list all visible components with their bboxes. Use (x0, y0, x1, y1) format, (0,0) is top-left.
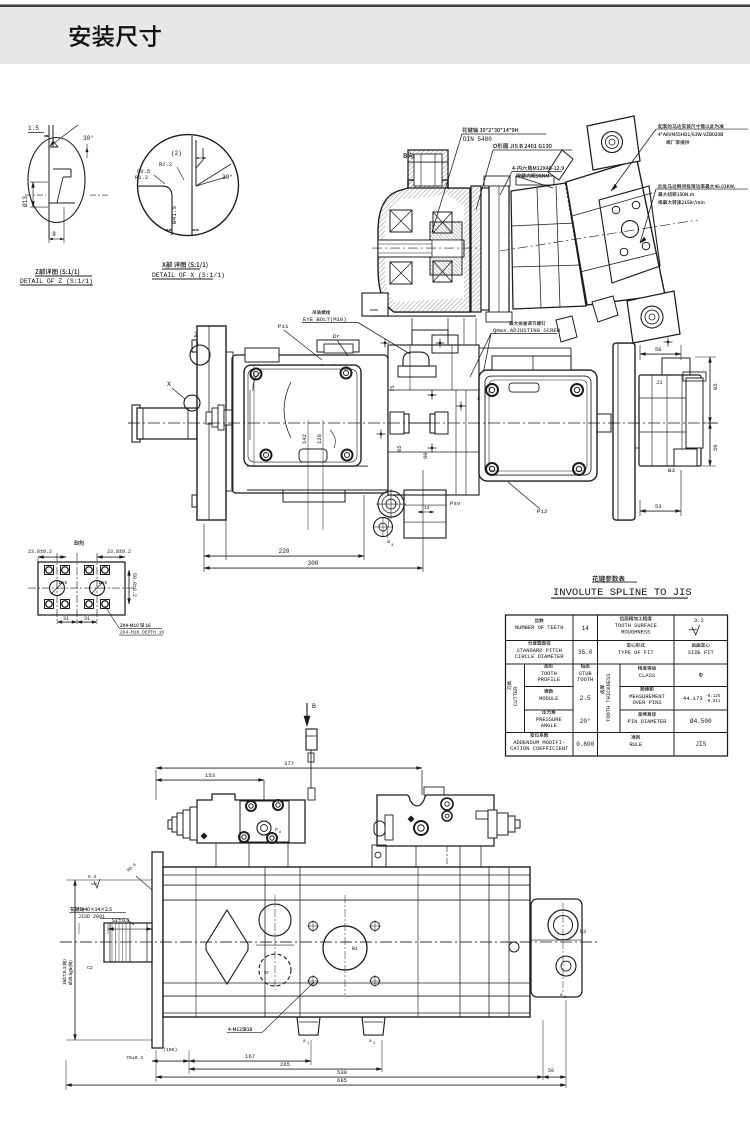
svg-text:EYE BOLT(M10): EYE BOLT(M10) (303, 316, 347, 323)
svg-text:Ø19: Ø19 (99, 579, 107, 586)
svg-text:ADDENDUM MODIFI-: ADDENDUM MODIFI- (513, 740, 565, 746)
svg-text:300: 300 (308, 560, 319, 567)
svg-text:31: 31 (84, 616, 90, 622)
svg-text:X: X (167, 381, 171, 388)
svg-text:B: B (312, 703, 316, 710)
svg-text:14: 14 (582, 625, 590, 632)
svg-text:8: 8 (52, 231, 56, 238)
svg-text:78±0.1: 78±0.1 (126, 1055, 143, 1061)
svg-text:CUTTER: CUTTER (513, 686, 519, 706)
svg-text:Dr: Dr (333, 333, 340, 340)
svg-text:265: 265 (280, 1061, 290, 1068)
svg-text:(105): (105) (163, 1047, 178, 1053)
svg-text:167: 167 (245, 1053, 255, 1060)
svg-text:Qmax.ADJUSTING SCREW: Qmax.ADJUSTING SCREW (493, 327, 561, 334)
svg-text:35.0: 35.0 (578, 649, 593, 656)
svg-text:128: 128 (316, 434, 323, 444)
svg-text:31: 31 (63, 616, 69, 622)
svg-text:MEASUREMENT: MEASUREMENT (629, 694, 665, 700)
svg-text:(2): (2) (171, 150, 182, 157)
svg-text:PROFILE: PROFILE (537, 677, 560, 683)
svg-text:1.5: 1.5 (28, 125, 39, 132)
svg-text:B1: B1 (352, 946, 358, 952)
svg-text:14: 14 (424, 505, 430, 511)
svg-text:NUMBER OF TEETH: NUMBER OF TEETH (515, 625, 564, 631)
svg-text:Psv: Psv (450, 500, 461, 507)
svg-text:2.5: 2.5 (580, 695, 591, 702)
svg-text:CATION COEFFICIENT: CATION COEFFICIENT (510, 746, 569, 752)
svg-text:2: 2 (373, 1042, 375, 1046)
svg-text:STANDARD PITCH: STANDARD PITCH (517, 648, 562, 654)
svg-text:B3: B3 (668, 467, 675, 474)
svg-text:75: 75 (389, 385, 396, 392)
svg-text:CIRCLE DIAMETER: CIRCLE DIAMETER (515, 654, 564, 660)
svg-text:23.8±0.2: 23.8±0.2 (28, 549, 52, 555)
svg-text:a: a (369, 1039, 372, 1044)
svg-text:ROUGHNESS: ROUGHNESS (621, 630, 650, 636)
svg-text:DIN 5480: DIN 5480 (463, 136, 492, 143)
svg-text:Pi1: Pi1 (278, 323, 289, 330)
svg-text:d: d (279, 830, 281, 835)
svg-text:685: 685 (337, 1077, 347, 1084)
svg-text:R1.2: R1.2 (159, 161, 172, 168)
svg-text:a: a (560, 993, 563, 998)
svg-text:a: a (387, 539, 390, 545)
svg-text:50: 50 (548, 1068, 554, 1074)
svg-text:OVER PINS: OVER PINS (632, 700, 661, 706)
svg-text:JIS: JIS (695, 741, 706, 748)
svg-text:220: 220 (279, 548, 290, 555)
svg-text:SIDE FIT: SIDE FIT (688, 650, 715, 656)
svg-text:a: a (303, 1039, 306, 1044)
svg-text:DETAIL OF X (S:1/1): DETAIL OF X (S:1/1) (152, 272, 225, 279)
svg-text:DETAIL OF Z (S:1/1): DETAIL OF Z (S:1/1) (20, 278, 93, 285)
svg-text:TOOTH SURFACE: TOOTH SURFACE (615, 623, 657, 629)
svg-text:TOOTH: TOOTH (541, 671, 557, 677)
svg-text:44.173: 44.173 (683, 695, 703, 702)
svg-text:-0.211: -0.211 (705, 700, 721, 704)
svg-text:ANGLE: ANGLE (541, 723, 557, 729)
svg-text:Φ: Φ (699, 672, 703, 679)
svg-text:STUB: STUB (579, 671, 593, 677)
svg-text:1: 1 (307, 1042, 309, 1046)
svg-text:Ø13: Ø13 (22, 196, 29, 207)
svg-text:INVOLUTE SPLINE TO JIS: INVOLUTE SPLINE TO JIS (553, 587, 692, 599)
svg-text:-0.125: -0.125 (705, 695, 721, 699)
svg-text:TOOTH: TOOTH (577, 677, 593, 683)
svg-text:6.3: 6.3 (88, 874, 96, 880)
svg-text:R1.2: R1.2 (135, 174, 148, 181)
svg-text:50.8±0.2: 50.8±0.2 (131, 573, 137, 597)
svg-text:B3: B3 (580, 929, 586, 935)
svg-text:J1: J1 (656, 379, 663, 386)
svg-text:3.2: 3.2 (694, 617, 704, 624)
svg-text:80: 80 (422, 452, 429, 459)
svg-text:Dr: Dr (264, 970, 270, 976)
svg-text:Pi2: Pi2 (537, 508, 548, 515)
svg-text:20°: 20° (580, 718, 591, 725)
svg-text:23.8±0.2: 23.8±0.2 (107, 549, 131, 555)
svg-text:0.800: 0.800 (576, 741, 594, 748)
svg-text:30°: 30° (83, 135, 94, 142)
svg-text:50: 50 (655, 346, 662, 353)
svg-text:MODULE: MODULE (539, 696, 558, 702)
svg-text:RULE: RULE (629, 742, 642, 748)
svg-text:377: 377 (284, 760, 294, 767)
svg-text:C2: C2 (87, 965, 93, 971)
svg-text:P: P (275, 827, 278, 833)
svg-text:142: 142 (301, 434, 308, 444)
svg-text:JISD 2001: JISD 2001 (78, 914, 105, 920)
svg-text:530: 530 (337, 1069, 347, 1076)
svg-text:2X4-M10 DEPTH 16: 2X4-M10 DEPTH 16 (120, 630, 164, 636)
svg-text:Ø19: Ø19 (59, 579, 67, 586)
svg-text:Ø4.500: Ø4.500 (690, 718, 712, 725)
svg-text:TYPE OF FIT: TYPE OF FIT (618, 650, 654, 656)
svg-text:PRESSURE: PRESSURE (536, 717, 562, 723)
svg-text:Ø41.5: Ø41.5 (171, 206, 178, 224)
svg-text:56: 56 (712, 444, 719, 451)
svg-text:Z: Z (194, 332, 198, 339)
svg-text:TOOTH THICKNESS: TOOTH THICKNESS (606, 673, 612, 722)
svg-text:3: 3 (564, 996, 566, 1000)
svg-text:95: 95 (712, 383, 719, 390)
svg-text:CLASS: CLASS (639, 673, 655, 679)
svg-text:PIN DIAMETER: PIN DIAMETER (628, 719, 668, 725)
svg-text:65: 65 (396, 445, 403, 452)
svg-text:53: 53 (655, 503, 662, 510)
svg-text:153: 153 (205, 772, 215, 779)
